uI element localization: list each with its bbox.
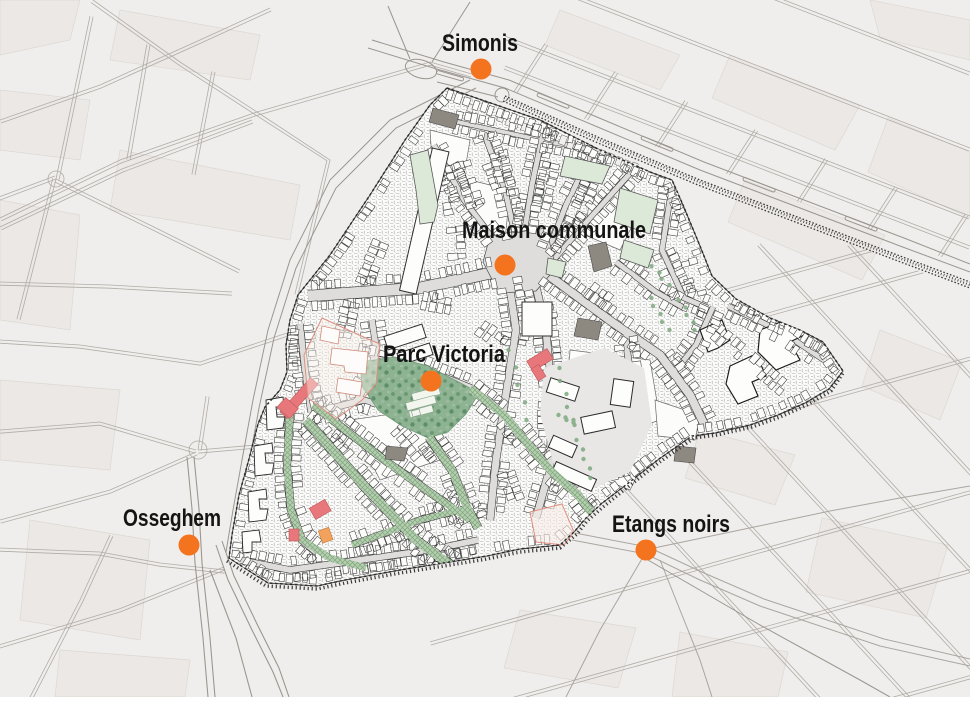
svg-text:Parc Victoria: Parc Victoria [383,341,505,368]
svg-text:Maison communale: Maison communale [462,217,646,244]
svg-text:Osseghem: Osseghem [123,505,221,532]
svg-text:Simonis: Simonis [442,30,518,57]
svg-text:Etangs noirs: Etangs noirs [612,511,730,538]
